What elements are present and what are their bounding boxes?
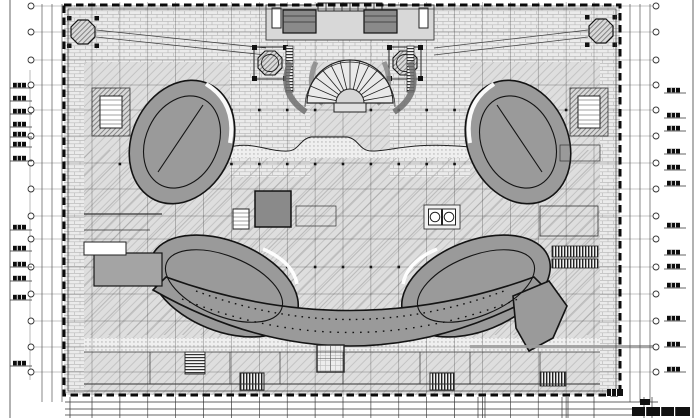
brick-band-left: [64, 62, 84, 395]
elevator-pair: [424, 205, 460, 229]
escalator-block-right-b: [552, 259, 598, 268]
entrance-block-left: [283, 10, 316, 33]
stair-bottom-left-small: [185, 352, 205, 374]
left-corridor: [94, 253, 162, 286]
stair-core-top-right: [578, 96, 600, 128]
stair-block-bottom-left: [240, 373, 264, 390]
entrance-post-right: [419, 8, 428, 28]
floor-plan-canvas: [0, 0, 700, 418]
title-stamp: [607, 389, 690, 416]
drawing-sheet: [0, 0, 700, 418]
bottom-dimension-grid: [65, 397, 658, 418]
axis-bubbles-left: [28, 3, 34, 375]
room-white-left: [84, 242, 126, 255]
main-entrance: [266, 3, 434, 40]
stair-core-top-left: [100, 96, 122, 128]
entrance-block-right: [364, 10, 397, 33]
stair-small-center-left: [233, 209, 249, 229]
annotation-tags-right: [664, 88, 686, 372]
entrance-post-left: [272, 8, 281, 28]
escalator-block-right-a: [552, 246, 598, 257]
stair-block-bottom-right: [430, 373, 454, 390]
core-dark-square: [255, 191, 291, 227]
axis-bubbles-right: [653, 3, 659, 375]
